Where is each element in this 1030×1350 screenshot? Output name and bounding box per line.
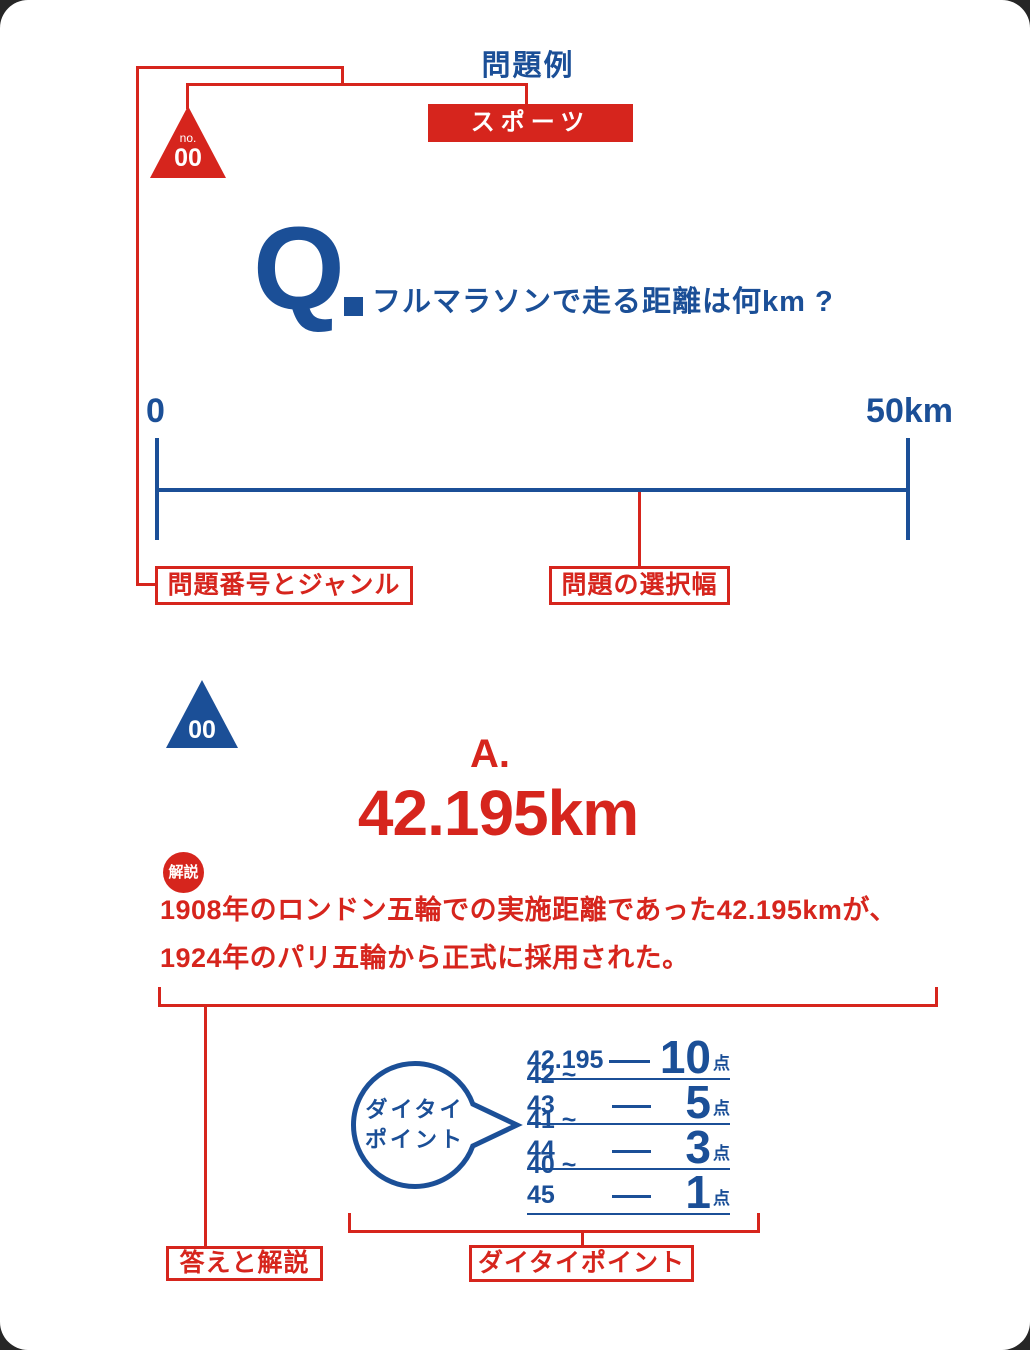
bracket-top-upper-line: [136, 66, 344, 69]
callout-range: 問題の選択幅: [549, 566, 730, 605]
points-range: 40 ~ 45: [527, 1150, 606, 1210]
question-number: 00: [150, 144, 226, 173]
daitai-bubble-shape: [0, 0, 1030, 1350]
points-bracket-tick-right: [757, 1213, 760, 1233]
bracket-drop-to-genre: [525, 83, 528, 106]
bracket-top-lower-line: [186, 83, 528, 86]
points-score: 5: [657, 1084, 711, 1120]
points-dash-line: [609, 1060, 649, 1063]
a-mark: A.: [430, 732, 550, 777]
points-unit: 点: [713, 1098, 730, 1120]
answer-number: 00: [166, 716, 238, 745]
callout-points: ダイタイポイント: [469, 1245, 694, 1282]
explanation-bracket-tick-left: [158, 987, 161, 1007]
points-unit: 点: [713, 1143, 730, 1165]
explanation-line-2: 1924年のパリ五輪から正式に採用された。: [160, 934, 950, 982]
daitai-bubble-text: ダイタイ ポイント: [351, 1061, 479, 1189]
points-dash-line: [612, 1105, 651, 1108]
callout-genre: 問題番号とジャンル: [155, 566, 413, 605]
left-callout-elbow: [136, 583, 157, 586]
points-score: 10: [656, 1039, 711, 1075]
explanation-text: 1908年のロンドン五輪での実施距離であった42.195kmが、 1924年のパ…: [160, 886, 950, 982]
points-unit: 点: [713, 1053, 730, 1075]
points-bracket-line: [348, 1230, 760, 1233]
answer-callout-stem: [204, 1004, 207, 1247]
explanation-bracket-tick-right: [935, 987, 938, 1007]
q-mark: Q: [253, 222, 345, 317]
page-title: 問題例: [448, 42, 608, 84]
scale-min-label: 0: [146, 392, 165, 431]
left-callout-rail: [136, 66, 139, 586]
explanation-bracket-line: [158, 1004, 938, 1007]
explanation-line-1: 1908年のロンドン五輪での実施距離であった42.195kmが、: [160, 886, 950, 934]
scale-tick-right: [906, 438, 910, 540]
points-score: 3: [657, 1129, 711, 1165]
genre-badge: スポーツ: [428, 104, 633, 142]
question-text: フルマラソンで走る距離は何km ?: [372, 278, 834, 320]
scale-line: [157, 488, 910, 492]
question-number-triangle: no. 00: [150, 106, 226, 178]
points-bracket-tick-left: [348, 1213, 351, 1233]
bubble-line-2: ポイント: [365, 1125, 465, 1155]
question-no-label: no.: [150, 131, 226, 145]
points-row: 40 ~ 45 1 点: [527, 1175, 730, 1215]
callout-answer: 答えと解説: [166, 1246, 323, 1281]
points-dash-line: [612, 1150, 651, 1153]
points-score: 1: [657, 1174, 711, 1210]
bubble-line-1: ダイタイ: [365, 1095, 464, 1125]
points-dash-line: [612, 1195, 651, 1198]
points-unit: 点: [713, 1188, 730, 1210]
scale-max-label: 50km: [858, 392, 953, 431]
answer-number-triangle: 00: [166, 680, 238, 748]
quiz-example-page: 問題例 no. 00 スポーツ Q フルマラソンで走る距離は何km ? 0 50…: [0, 0, 1030, 1350]
answer-value: 42.195km: [288, 776, 708, 850]
q-period-square: [344, 297, 363, 316]
scale-tick-left: [155, 438, 159, 540]
range-callout-stem: [638, 492, 641, 568]
